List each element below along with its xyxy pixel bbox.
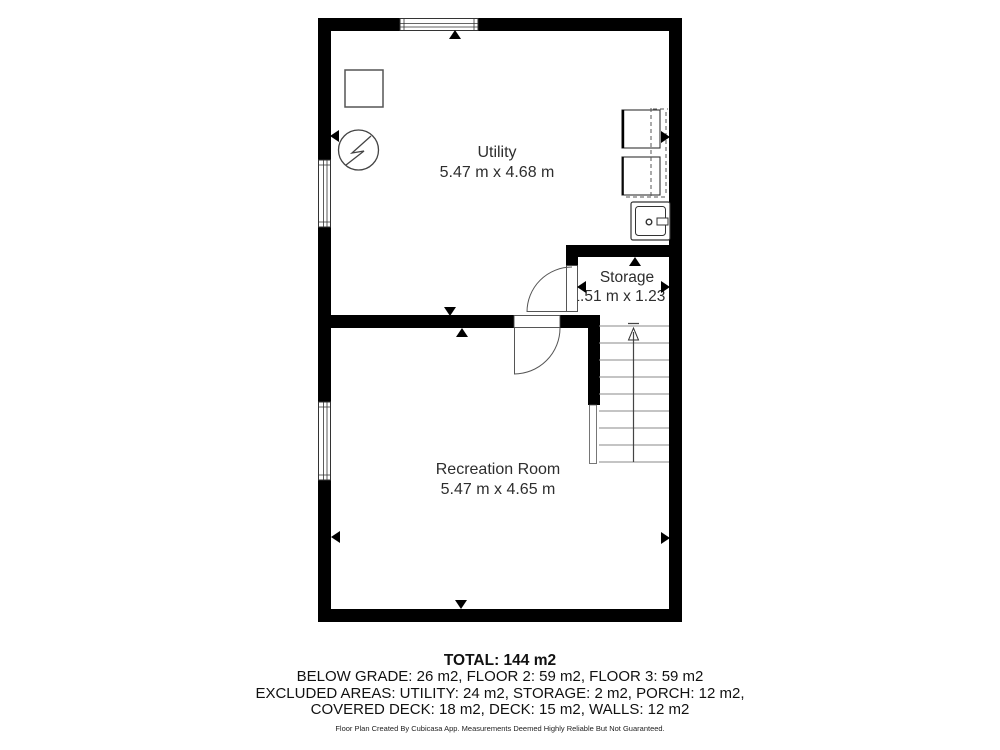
wall-midpoint-marker-icon bbox=[661, 281, 670, 293]
wall-midpoint-marker-icon bbox=[456, 328, 468, 337]
room-dimensions: 5.47 m x 4.65 m bbox=[398, 480, 598, 500]
window-icon bbox=[319, 160, 331, 227]
excluded-areas-text-2: COVERED DECK: 18 m2, DECK: 15 m2, WALLS:… bbox=[0, 702, 1000, 718]
storage-wall-left-upper bbox=[566, 245, 578, 267]
dryer-icon bbox=[622, 157, 660, 195]
walls bbox=[318, 18, 682, 622]
window-icon bbox=[400, 19, 478, 31]
staircase-up-arrow-icon bbox=[628, 324, 639, 463]
wall-midpoint-marker-icon bbox=[331, 531, 340, 543]
outer-wall-bottom bbox=[318, 609, 682, 622]
room-label-utility: Utility 5.47 m x 4.68 m bbox=[397, 143, 597, 183]
area-summary: TOTAL: 144 m2 BELOW GRADE: 26 m2, FLOOR … bbox=[0, 653, 1000, 719]
wall-midpoint-marker-icon bbox=[661, 532, 670, 544]
floor-plan-canvas: Storage 1.51 m x 1.23 m bbox=[0, 0, 1000, 750]
room-name: Recreation Room bbox=[398, 460, 598, 480]
staircase bbox=[590, 324, 670, 464]
floor-plan-drawing bbox=[0, 0, 1000, 750]
wall-midpoint-marker-icon bbox=[330, 130, 339, 142]
total-area-text: TOTAL: 144 m2 bbox=[0, 653, 1000, 669]
interior-wall-right-segment bbox=[560, 315, 600, 328]
interior-wall-left-segment bbox=[331, 315, 514, 328]
door-swing-icon bbox=[527, 266, 578, 313]
washer-icon bbox=[622, 110, 660, 148]
wall-midpoint-marker-icon bbox=[449, 30, 461, 39]
windows bbox=[319, 19, 479, 481]
wall-midpoint-marker-icon bbox=[577, 281, 586, 293]
laundry-sink-icon bbox=[631, 202, 670, 240]
stair-railing bbox=[590, 405, 597, 464]
excluded-areas-text: EXCLUDED AREAS: UTILITY: 24 m2, STORAGE:… bbox=[0, 686, 1000, 702]
outer-wall-right bbox=[669, 18, 682, 622]
window-icon bbox=[319, 402, 331, 480]
storage-wall-top bbox=[566, 245, 682, 257]
wall-midpoint-marker-icon bbox=[455, 600, 467, 609]
room-label-recreation: Recreation Room 5.47 m x 4.65 m bbox=[398, 460, 598, 500]
wall-midpoint-marker-icon bbox=[444, 307, 456, 316]
floor-areas-text: BELOW GRADE: 26 m2, FLOOR 2: 59 m2, FLOO… bbox=[0, 669, 1000, 685]
room-name: Utility bbox=[397, 143, 597, 163]
room-dimensions: 5.47 m x 4.68 m bbox=[397, 163, 597, 183]
wall-midpoint-marker-icon bbox=[629, 257, 641, 266]
electrical-panel-icon bbox=[339, 130, 379, 170]
appliance-box-icon bbox=[345, 70, 383, 107]
door-swing-icon bbox=[514, 316, 560, 375]
outer-wall-left bbox=[318, 18, 331, 622]
disclaimer-text: Floor Plan Created By Cubicasa App. Meas… bbox=[0, 724, 1000, 733]
outer-wall-top bbox=[318, 18, 682, 31]
stairwell-wall bbox=[588, 328, 600, 405]
